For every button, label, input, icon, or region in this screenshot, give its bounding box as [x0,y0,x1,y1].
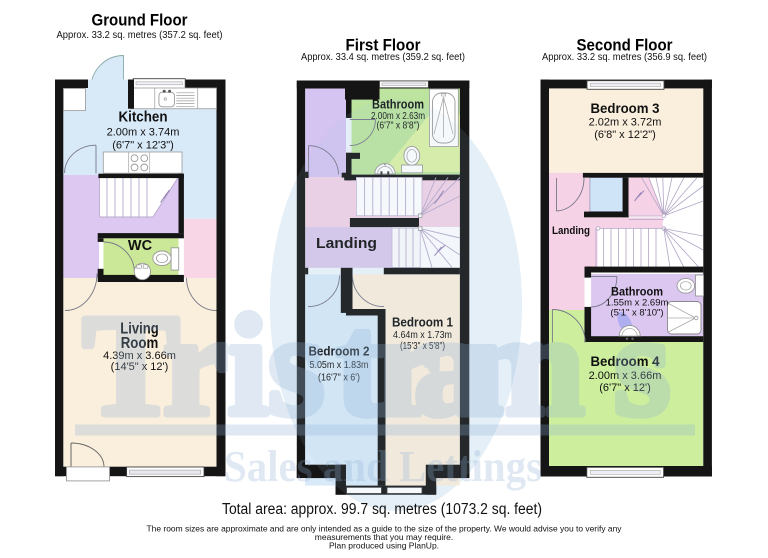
svg-text:m: m [464,286,585,446]
svg-text:Total area: approx. 99.7 sq. m: Total area: approx. 99.7 sq. metres (107… [222,501,542,518]
svg-text:Plan produced using PlanUp.: Plan produced using PlanUp. [329,541,439,551]
svg-text:Ground Floor: Ground Floor [92,11,188,30]
svg-text:i: i [228,286,268,446]
svg-text:Sales and Lettings: Sales and Lettings [224,442,542,491]
svg-text:WC: WC [128,238,153,254]
svg-text:s: s [614,286,670,446]
svg-text:2.02m x 3.72m: 2.02m x 3.72m [589,117,662,129]
svg-text:Landing: Landing [552,225,590,237]
svg-text:Kitchen: Kitchen [119,109,168,126]
svg-text:Approx. 33.4 sq. metres (359.2: Approx. 33.4 sq. metres (359.2 sq. feet) [301,51,465,63]
svg-text:(6'8" x 12'2"): (6'8" x 12'2") [594,129,656,141]
svg-text:Approx. 33.2 sq. metres (357.2: Approx. 33.2 sq. metres (357.2 sq. feet) [57,29,223,41]
svg-text:2.00m x 3.74m: 2.00m x 3.74m [107,127,180,139]
svg-text:r: r [163,286,227,446]
svg-text:(6'7" x 12'3"): (6'7" x 12'3") [112,140,174,152]
svg-text:s: s [268,286,324,446]
svg-text:Approx. 33.2 sq. metres (356.9: Approx. 33.2 sq. metres (356.9 sq. feet) [542,51,707,63]
svg-text:Bedroom 3: Bedroom 3 [591,100,660,116]
